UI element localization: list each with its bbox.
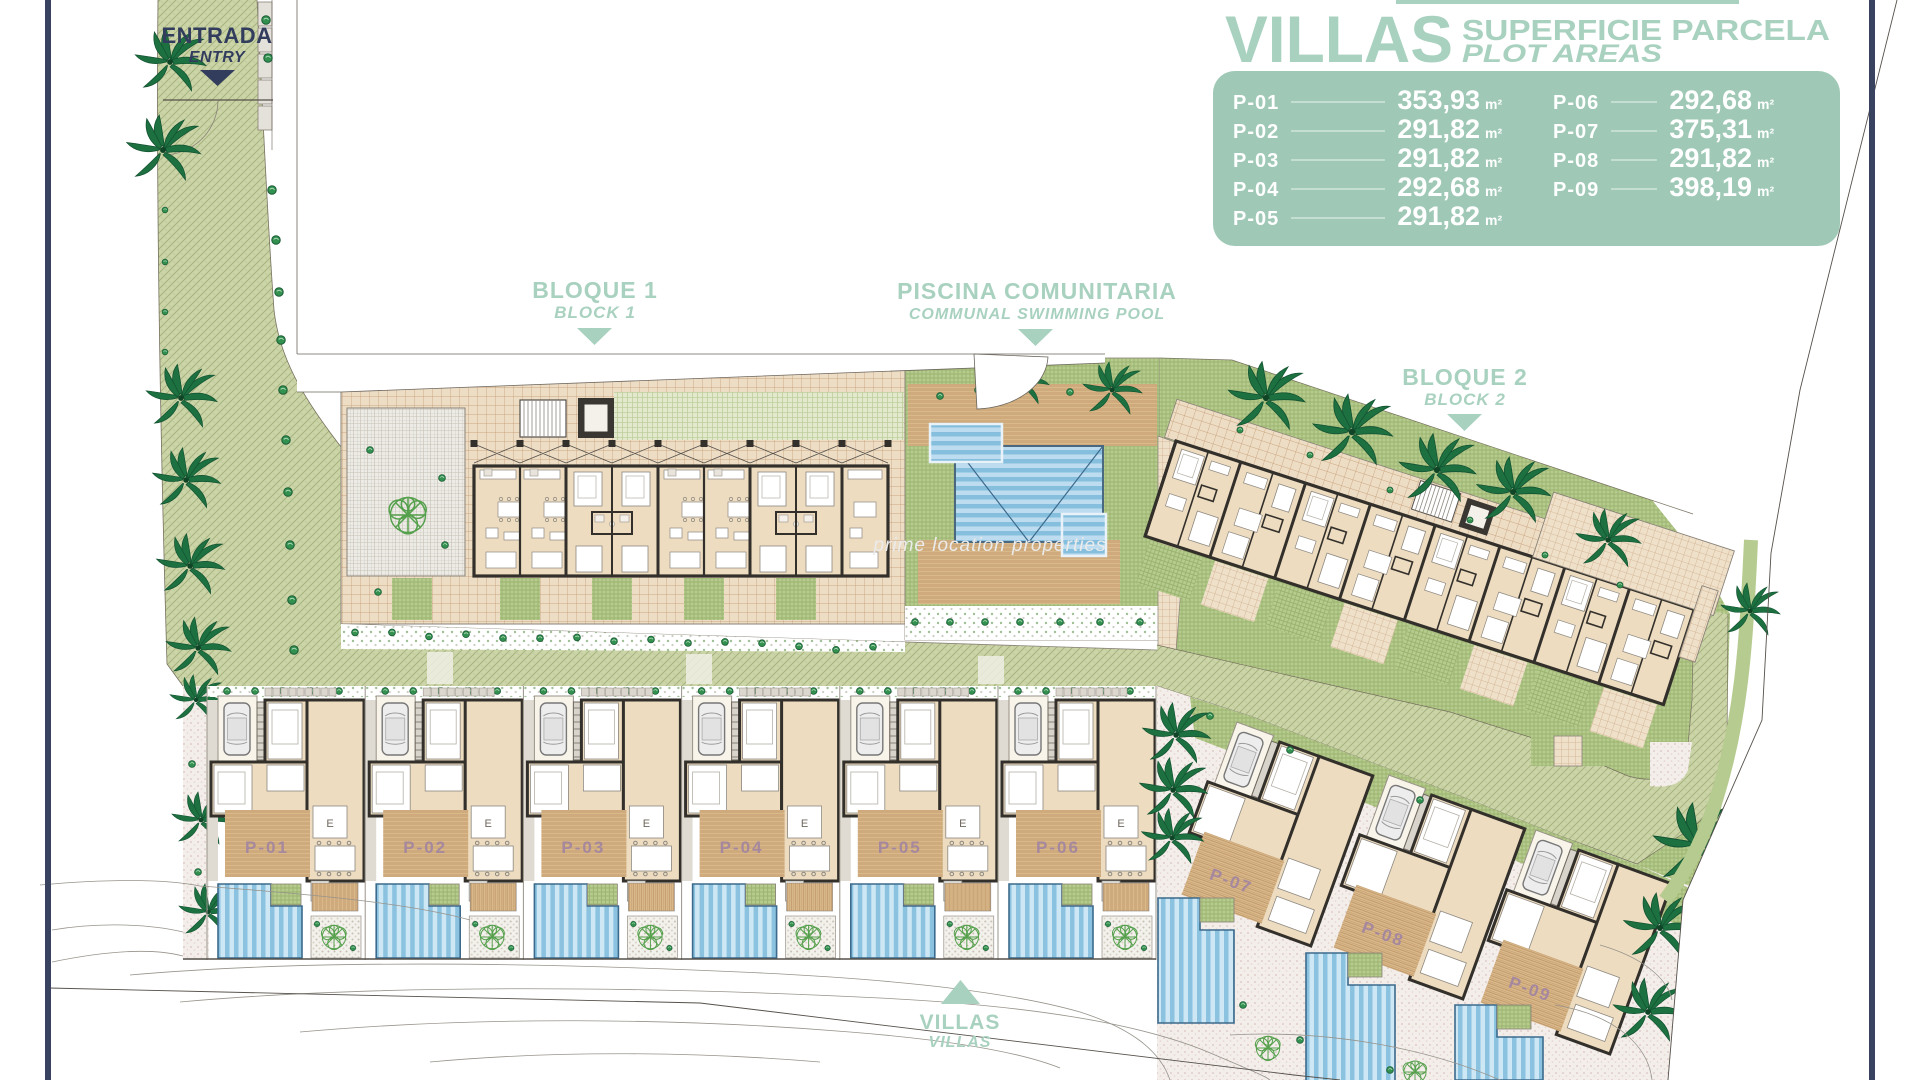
svg-text:375,31: 375,31 <box>1669 114 1752 144</box>
svg-text:BLOQUE 1: BLOQUE 1 <box>532 277 658 303</box>
svg-text:BLOCK 2: BLOCK 2 <box>1424 390 1506 409</box>
svg-text:291,82: 291,82 <box>1669 143 1752 173</box>
svg-text:291,82: 291,82 <box>1397 201 1480 231</box>
svg-text:P-04: P-04 <box>1233 179 1279 201</box>
svg-text:P-05: P-05 <box>878 838 922 857</box>
svg-text:m²: m² <box>1757 125 1774 141</box>
svg-text:prime location properties: prime location properties <box>872 535 1106 556</box>
svg-text:P-06: P-06 <box>1553 92 1599 114</box>
svg-text:m²: m² <box>1757 183 1774 199</box>
svg-text:m²: m² <box>1485 154 1502 170</box>
svg-text:PISCINA COMUNITARIA: PISCINA COMUNITARIA <box>897 278 1177 304</box>
svg-text:VILLAS: VILLAS <box>920 1011 1001 1034</box>
svg-text:VILLAS: VILLAS <box>1225 2 1453 76</box>
svg-text:BLOQUE 2: BLOQUE 2 <box>1402 364 1528 390</box>
svg-text:P-02: P-02 <box>1233 121 1279 143</box>
svg-text:m²: m² <box>1485 183 1502 199</box>
svg-text:P-04: P-04 <box>720 838 764 857</box>
svg-text:291,82: 291,82 <box>1397 143 1480 173</box>
svg-text:m²: m² <box>1757 96 1774 112</box>
svg-text:BLOCK 1: BLOCK 1 <box>554 303 636 322</box>
svg-text:353,93: 353,93 <box>1397 85 1480 115</box>
svg-text:292,68: 292,68 <box>1397 172 1480 202</box>
svg-text:m²: m² <box>1485 125 1502 141</box>
svg-text:292,68: 292,68 <box>1669 85 1752 115</box>
svg-text:P-03: P-03 <box>561 838 605 857</box>
svg-text:291,82: 291,82 <box>1397 114 1480 144</box>
svg-text:P-03: P-03 <box>1233 150 1279 172</box>
svg-text:P-01: P-01 <box>1233 92 1279 114</box>
svg-text:P-09: P-09 <box>1553 179 1599 201</box>
svg-text:COMMUNAL SWIMMING POOL: COMMUNAL SWIMMING POOL <box>909 306 1165 323</box>
svg-text:P-06: P-06 <box>1036 838 1080 857</box>
svg-text:PLOT AREAS: PLOT AREAS <box>1462 40 1662 68</box>
svg-text:m²: m² <box>1757 154 1774 170</box>
svg-text:P-07: P-07 <box>1553 121 1599 143</box>
svg-text:P-02: P-02 <box>403 838 447 857</box>
svg-text:m²: m² <box>1485 96 1502 112</box>
svg-text:ENTRADA: ENTRADA <box>161 23 272 48</box>
svg-text:398,19: 398,19 <box>1669 172 1752 202</box>
svg-text:m²: m² <box>1485 212 1502 228</box>
svg-text:P-08: P-08 <box>1553 150 1599 172</box>
svg-text:VILLAS: VILLAS <box>929 1034 992 1051</box>
svg-text:P-05: P-05 <box>1233 208 1279 230</box>
svg-text:ENTRY: ENTRY <box>189 49 246 66</box>
svg-text:P-01: P-01 <box>245 838 289 857</box>
